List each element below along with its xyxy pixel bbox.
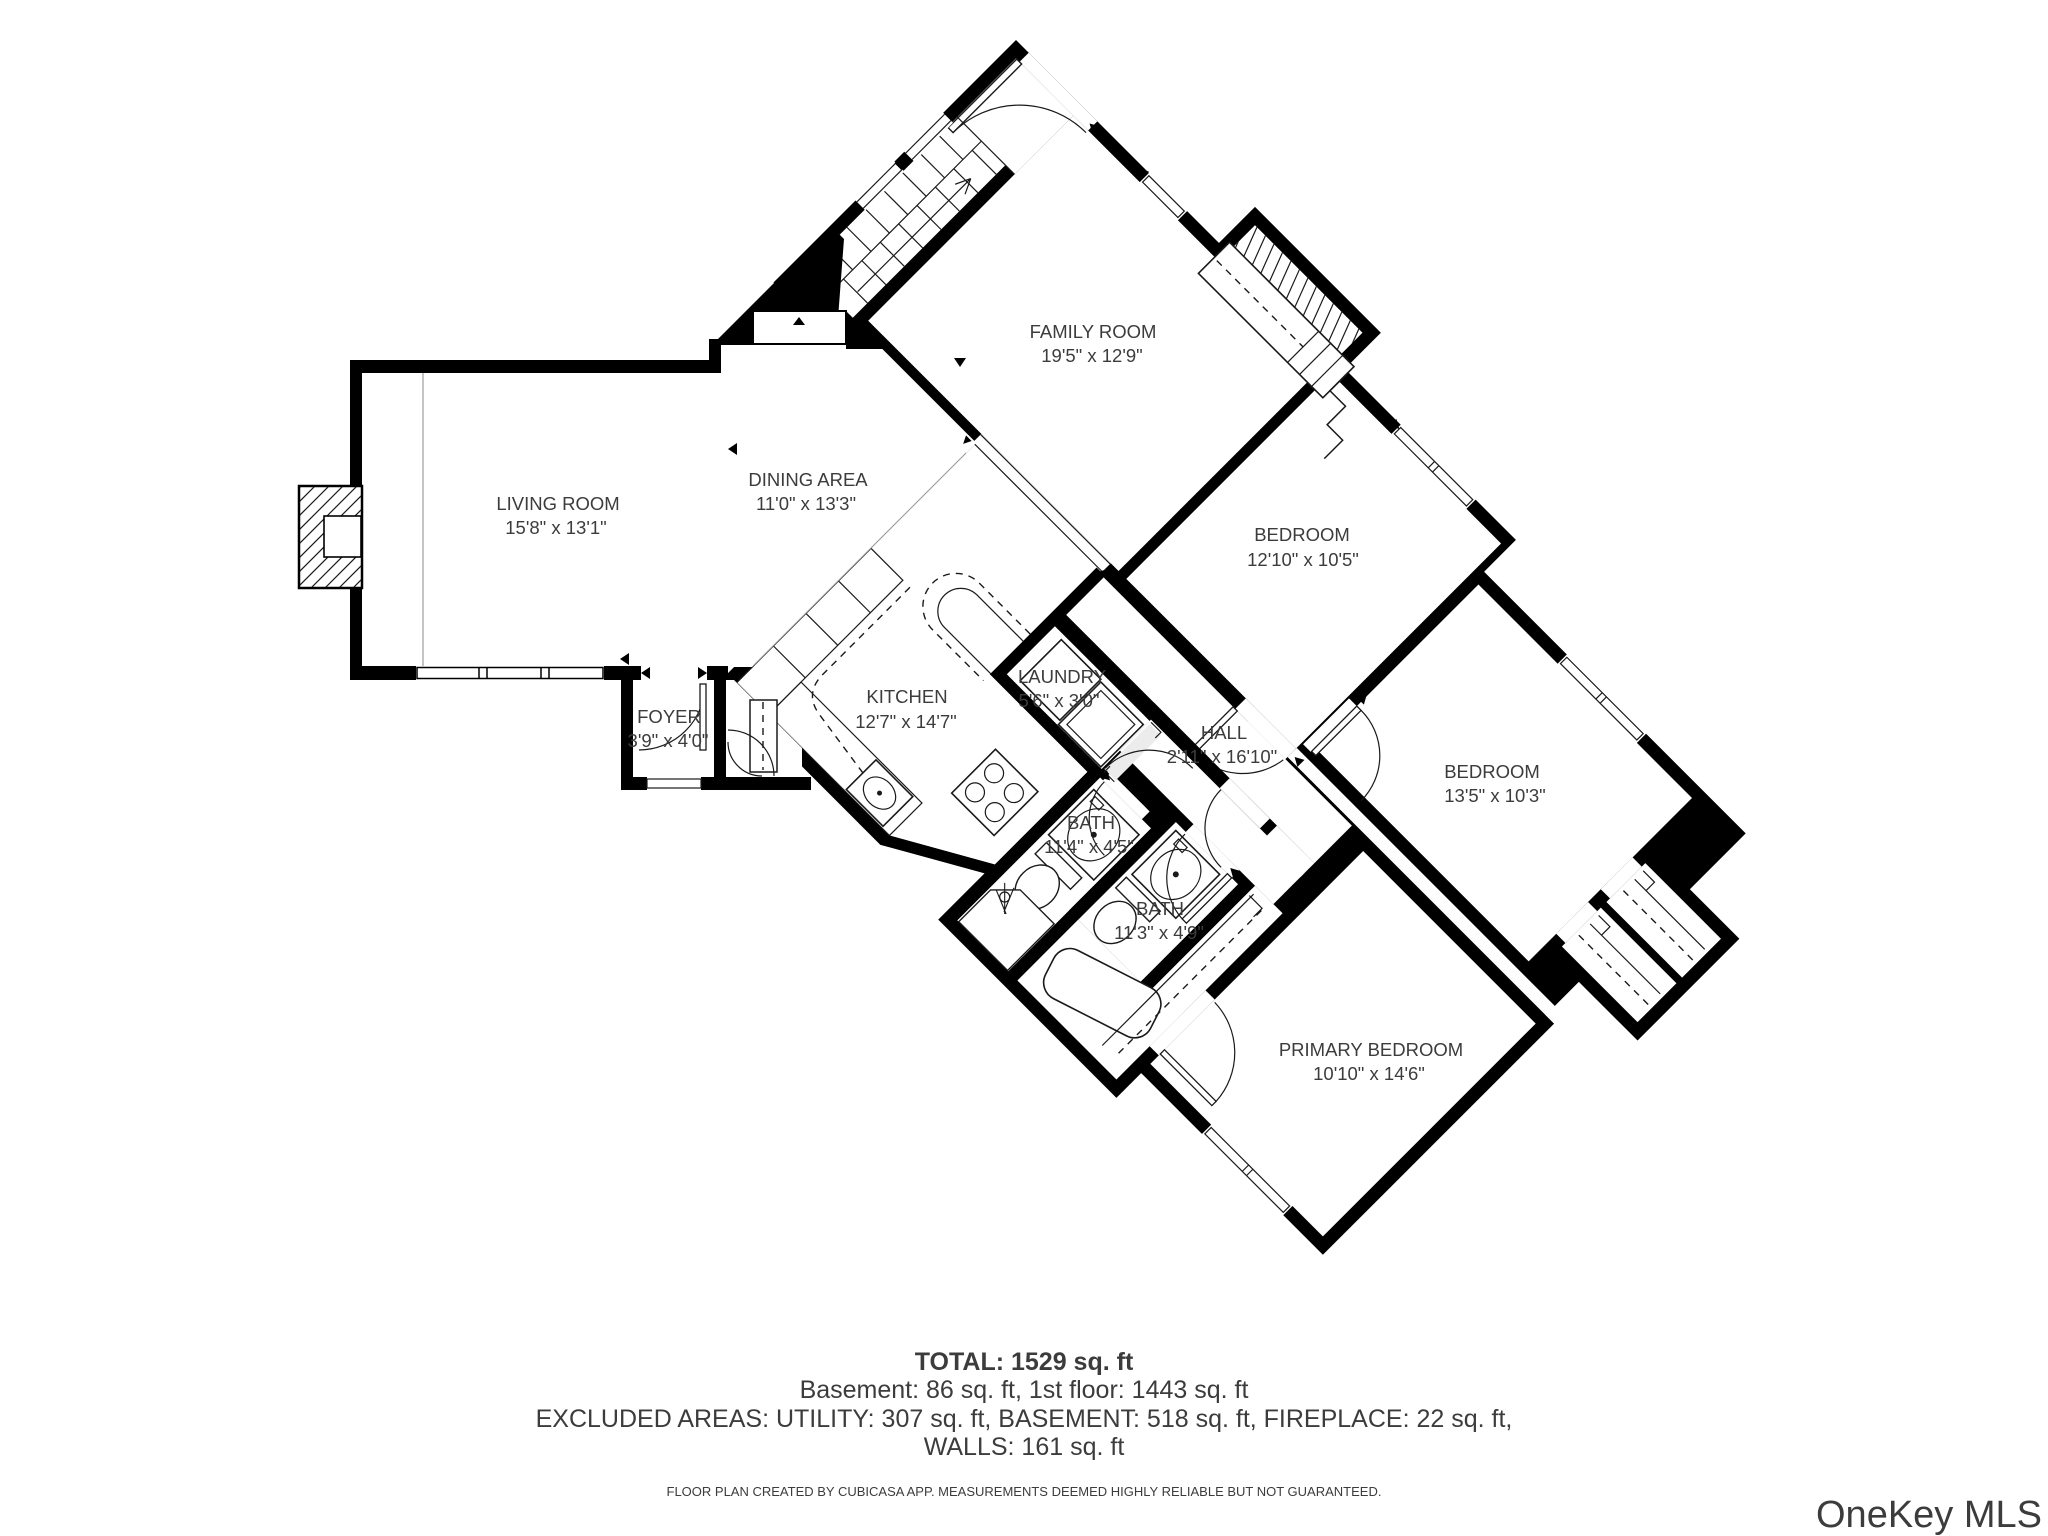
svg-text:KITCHEN: KITCHEN (866, 686, 947, 707)
svg-text:EXCLUDED AREAS: UTILITY: 307 s: EXCLUDED AREAS: UTILITY: 307 sq. ft, BAS… (536, 1405, 1513, 1433)
svg-text:BEDROOM: BEDROOM (1444, 761, 1540, 782)
svg-text:OneKey MLS: OneKey MLS (1816, 1494, 2042, 1536)
svg-text:FLOOR PLAN CREATED BY CUBICASA: FLOOR PLAN CREATED BY CUBICASA APP. MEAS… (667, 1484, 1382, 1499)
svg-text:PRIMARY BEDROOM: PRIMARY BEDROOM (1279, 1039, 1463, 1060)
svg-text:LAUNDRY: LAUNDRY (1018, 666, 1106, 687)
svg-text:FOYER: FOYER (637, 706, 701, 727)
svg-text:BATH: BATH (1067, 812, 1115, 833)
svg-text:DINING AREA: DINING AREA (748, 469, 868, 490)
svg-text:12'7" x 14'7": 12'7" x 14'7" (855, 711, 956, 732)
svg-text:11'0" x 13'3": 11'0" x 13'3" (756, 493, 856, 514)
svg-text:5'6" x 3'0": 5'6" x 3'0" (1019, 690, 1100, 711)
svg-text:19'5" x 12'9": 19'5" x 12'9" (1041, 345, 1142, 366)
svg-text:HALL: HALL (1201, 722, 1247, 743)
svg-text:BATH: BATH (1136, 898, 1184, 919)
svg-text:11'4" x 4'5": 11'4" x 4'5" (1044, 836, 1134, 857)
svg-text:3'9" x 4'0": 3'9" x 4'0" (628, 730, 709, 751)
svg-text:BEDROOM: BEDROOM (1254, 524, 1350, 545)
svg-text:2'11" x 16'10": 2'11" x 16'10" (1167, 746, 1277, 767)
svg-text:Basement: 86 sq. ft, 1st floor: Basement: 86 sq. ft, 1st floor: 1443 sq.… (800, 1376, 1249, 1404)
svg-text:11'3" x 4'9": 11'3" x 4'9" (1114, 922, 1204, 943)
svg-text:FAMILY ROOM: FAMILY ROOM (1030, 321, 1157, 342)
svg-text:LIVING ROOM: LIVING ROOM (496, 493, 619, 514)
svg-text:12'10" x 10'5": 12'10" x 10'5" (1247, 549, 1359, 570)
svg-text:WALLS: 161 sq. ft: WALLS: 161 sq. ft (924, 1433, 1125, 1461)
svg-text:10'10" x 14'6": 10'10" x 14'6" (1313, 1063, 1425, 1084)
svg-text:TOTAL: 1529 sq. ft: TOTAL: 1529 sq. ft (915, 1348, 1134, 1376)
svg-text:13'5" x 10'3": 13'5" x 10'3" (1444, 785, 1545, 806)
svg-text:15'8" x 13'1": 15'8" x 13'1" (505, 517, 606, 538)
